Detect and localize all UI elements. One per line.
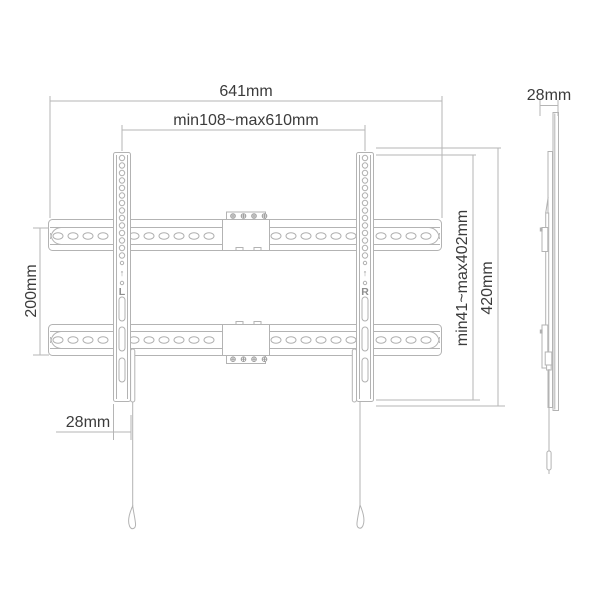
dim-hole-height-range: min41~max402mm: [376, 155, 480, 400]
dim-arm-width-label: 28mm: [66, 414, 110, 431]
dim-total-width: 641mm: [50, 83, 442, 218]
right-arm-release-clip: [352, 349, 356, 402]
dim-rail-spacing-label: 200mm: [23, 264, 40, 317]
dim-rail-spacing: 200mm: [23, 228, 49, 355]
right-arm-letter: R: [361, 286, 369, 298]
left-arm-release-clip: [131, 349, 135, 402]
diagram-canvas: ↑ L ↑ R: [0, 0, 600, 600]
arm-profile: [540, 152, 553, 408]
left-pull-cord: [129, 402, 136, 529]
dim-total-height: 420mm: [376, 148, 505, 406]
side-view: [540, 113, 559, 475]
front-view: ↑ L ↑ R: [49, 153, 442, 529]
dim-hole-height-range-label: min41~max402mm: [454, 210, 471, 347]
top-hook-profile: [542, 228, 548, 252]
dim-profile-depth-label: 28mm: [527, 87, 571, 104]
left-arm-letter: L: [119, 286, 126, 298]
left-arm-arrow-icon: ↑: [120, 268, 125, 278]
bottom-center-plate: [223, 322, 270, 364]
dim-hole-width-range-label: min108~max610mm: [173, 112, 318, 129]
dim-profile-depth: 28mm: [527, 87, 571, 116]
dim-total-width-label: 641mm: [219, 83, 272, 100]
wall-mount-technical-drawing: ↑ L ↑ R: [0, 0, 600, 600]
wall-plate-profile: [553, 113, 559, 411]
dimension-annotations: 641mm min108~max610mm 28mm 200mm: [23, 83, 571, 440]
right-arm-arrow-icon: ↑: [363, 268, 368, 278]
dim-hole-width-range: min108~max610mm: [122, 112, 365, 151]
right-pull-cord: [357, 402, 364, 528]
dim-total-height-label: 420mm: [479, 261, 496, 314]
dim-arm-width: 28mm: [56, 404, 131, 440]
top-center-plate: [223, 212, 270, 251]
